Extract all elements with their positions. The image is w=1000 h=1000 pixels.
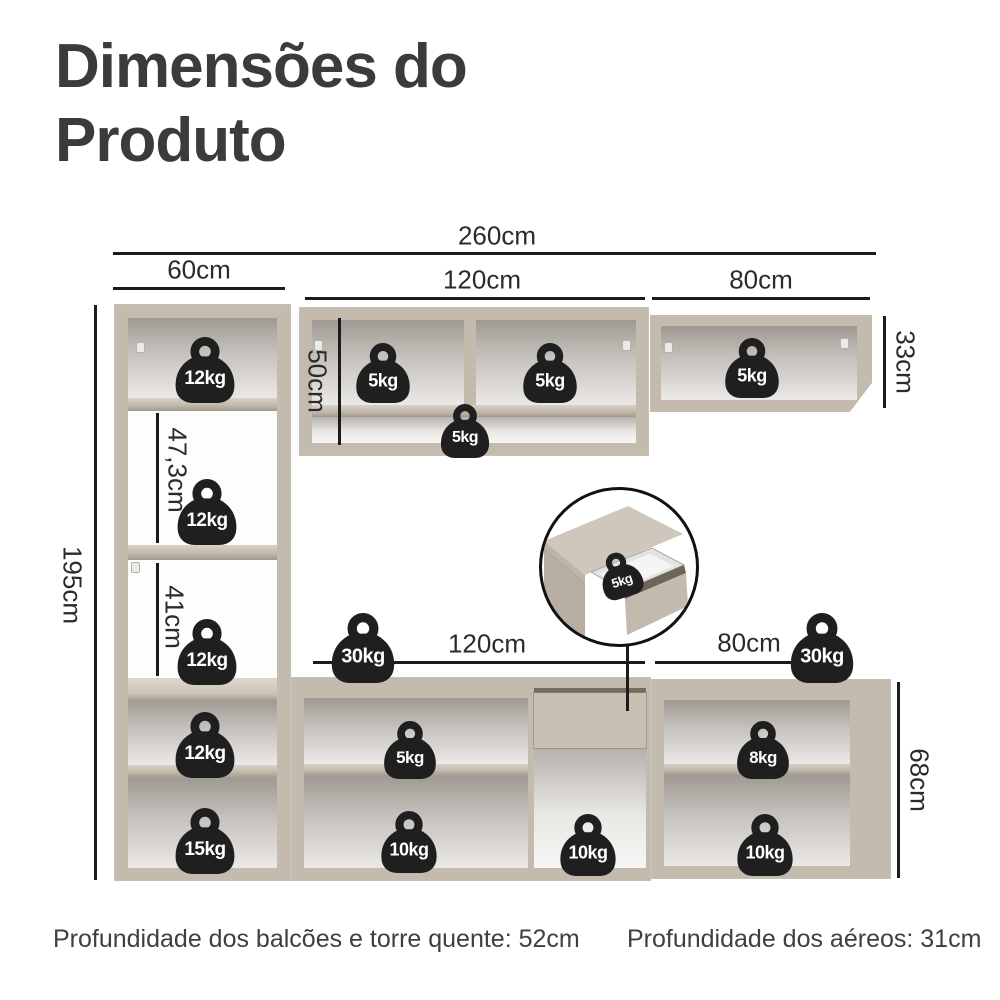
hinge-icon	[664, 342, 673, 353]
weight-badge-upper-mid-right: 5kg	[521, 343, 579, 403]
footer-depth-upper: Profundidade dos aéreos: 31cm	[627, 925, 981, 954]
weight-badge-base-mid-bottom: 10kg	[379, 811, 439, 873]
weight-badge-counter-right: 30kg	[788, 613, 856, 683]
hinge-icon	[840, 338, 849, 349]
dim-label-base-mid-width: 120cm	[448, 629, 526, 660]
dim-line-base-height	[897, 682, 900, 878]
weight-badge-tower-base-upper: 12kg	[173, 712, 237, 778]
dim-label-total-width: 260cm	[458, 221, 536, 252]
weight-label: 12kg	[175, 510, 239, 532]
dim-line-upper-mid-height	[338, 318, 341, 445]
dim-label-base-height: 68cm	[904, 748, 935, 812]
weight-label: 8kg	[735, 748, 791, 768]
weight-badge-counter-mid: 30kg	[329, 613, 397, 683]
dim-label-base-right-width: 80cm	[717, 628, 781, 659]
weight-label: 5kg	[723, 365, 781, 386]
weight-badge-upper-mid-shelf: 5kg	[439, 404, 491, 458]
weight-label: 5kg	[354, 370, 412, 391]
weight-label: 30kg	[788, 646, 856, 669]
weight-badge-base-right-shelf: 8kg	[735, 721, 791, 779]
dim-label-upper-right-height: 33cm	[890, 330, 921, 394]
weight-label: 12kg	[175, 650, 239, 672]
weight-label: 5kg	[521, 370, 579, 391]
magnifier-callout-line	[626, 645, 629, 711]
weight-badge-base-mid-shelf: 5kg	[382, 721, 438, 779]
weight-label: 12kg	[173, 743, 237, 765]
dim-label-upper-mid-height: 50cm	[302, 349, 333, 413]
dim-line-upper-right-height	[883, 316, 886, 408]
product-dimensions-diagram: Dimensões do Produto 260cm 60cm 120cm 80…	[0, 0, 1000, 1000]
weight-badge-base-drawer-bottom: 10kg	[558, 814, 618, 876]
dim-label-tower-width: 60cm	[167, 255, 231, 286]
dim-line-upper-right-width	[652, 297, 870, 300]
page-title: Dimensões do Produto	[55, 30, 535, 179]
dim-label-upper-mid-width: 120cm	[443, 265, 521, 296]
weight-label: 10kg	[735, 843, 795, 864]
weight-badge-base-right-bottom: 10kg	[735, 814, 795, 876]
dim-line-tower-mid-niche	[156, 413, 159, 543]
base-right-countertop	[652, 680, 890, 700]
weight-badge-tower-top: 12kg	[173, 337, 237, 403]
dim-label-upper-right-width: 80cm	[729, 265, 793, 296]
footer-depth-base: Profundidade dos balcões e torre quente:…	[53, 925, 580, 954]
weight-label: 10kg	[379, 840, 439, 861]
weight-label: 15kg	[173, 839, 237, 861]
dim-line-upper-mid-width	[305, 297, 645, 300]
hinge-icon	[136, 342, 145, 353]
dim-label-tower-height: 195cm	[57, 546, 88, 624]
weight-badge-tower-base-bottom: 15kg	[173, 808, 237, 874]
weight-badge-tower-lower: 12kg	[175, 619, 239, 685]
hinge-icon	[622, 340, 631, 351]
weight-badge-tower-mid: 12kg	[175, 479, 239, 545]
drawer-detail-magnifier: 5kg	[539, 487, 699, 647]
dim-line-tower-width	[113, 287, 285, 290]
weight-label: 5kg	[439, 429, 491, 447]
dim-line-tower-height	[94, 305, 97, 880]
drawer-front	[534, 693, 646, 748]
weight-label: 5kg	[382, 748, 438, 768]
tower-shelf-2	[128, 545, 277, 560]
hinge-icon	[131, 562, 140, 573]
weight-label: 12kg	[173, 368, 237, 390]
weight-badge-upper-right: 5kg	[723, 338, 781, 398]
weight-label: 10kg	[558, 843, 618, 864]
weight-label: 30kg	[329, 646, 397, 669]
weight-badge-upper-mid-left: 5kg	[354, 343, 412, 403]
